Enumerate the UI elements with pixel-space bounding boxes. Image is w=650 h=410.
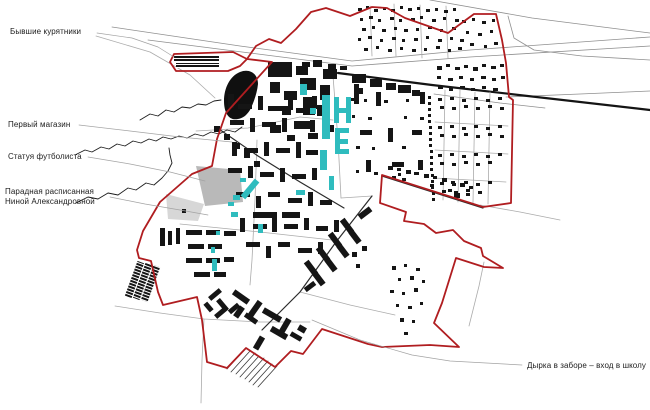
map-label-store: Первый магазин xyxy=(8,120,70,130)
map-label-hole: Дырка в заборе – вход в школу xyxy=(527,361,646,371)
scattered-sheds xyxy=(390,264,425,335)
city-map: Бывшие курятники Первый магазин Статуя ф… xyxy=(0,0,650,410)
map-label-statue: Статуя футболиста xyxy=(8,152,82,162)
park-area-light xyxy=(166,194,204,221)
map-label-coops: Бывшие курятники xyxy=(10,27,81,37)
map-label-entrance: Парадная расписанная Ниной Александровно… xyxy=(5,187,95,208)
settlement-boundary xyxy=(137,7,513,368)
school-buildings xyxy=(203,288,307,350)
village-houses xyxy=(350,6,505,201)
railway-spur-hatch xyxy=(227,348,277,387)
map-canvas xyxy=(0,0,650,410)
coop-barns xyxy=(174,56,219,68)
